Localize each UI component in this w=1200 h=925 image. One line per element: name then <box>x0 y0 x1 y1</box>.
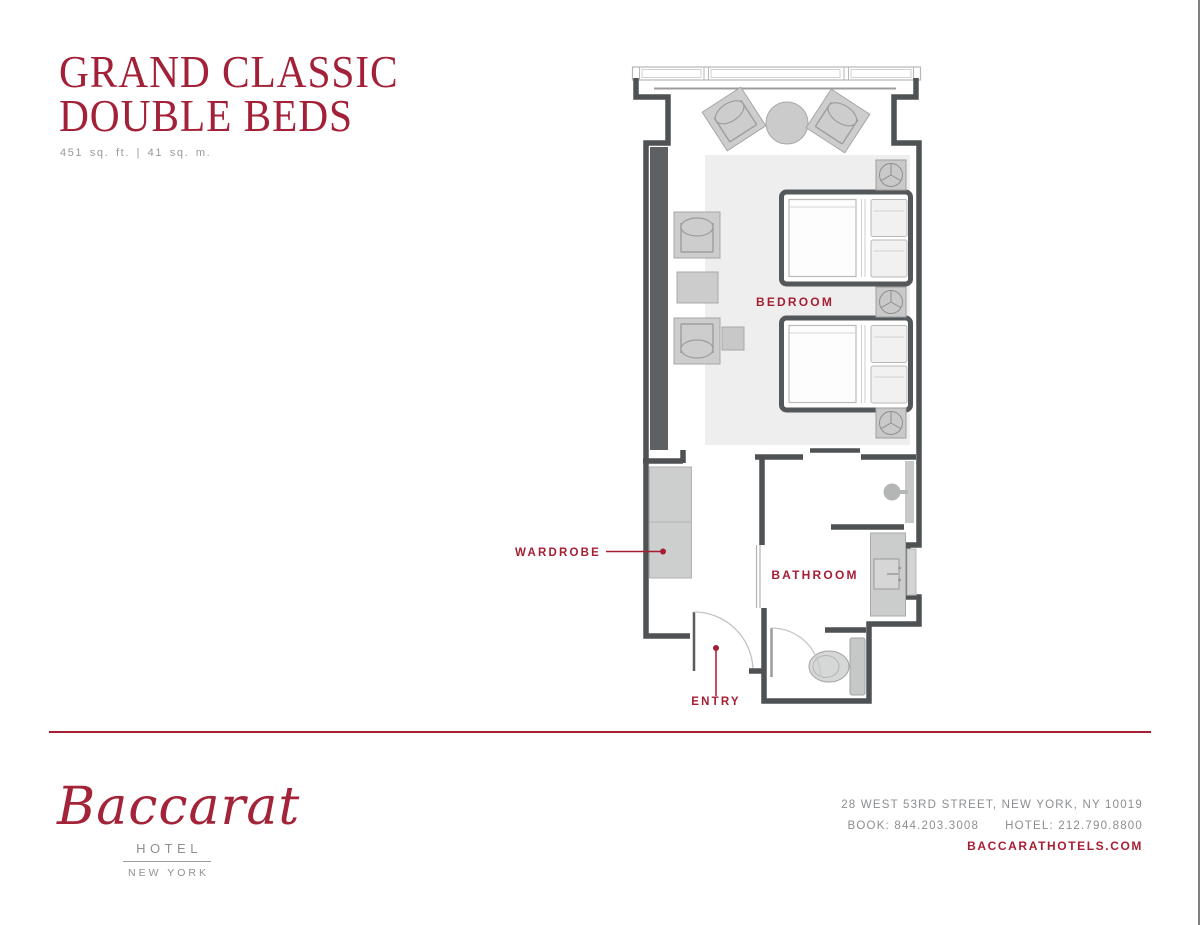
media-panel <box>650 147 668 450</box>
booking-phone: BOOK: 844.203.3008 <box>848 816 980 837</box>
wardrobe <box>650 467 692 578</box>
armchair-upper <box>674 212 720 258</box>
bed-1 <box>782 192 911 284</box>
nightstand-middle <box>876 287 906 317</box>
wall-entry-top <box>643 450 683 463</box>
wardrobe-label: WARDROBE <box>515 547 601 559</box>
hotel-phone: HOTEL: 212.790.8800 <box>1005 816 1143 837</box>
brand-hotel-text: HOTEL <box>57 841 277 856</box>
armchair-lower <box>674 318 720 364</box>
brand-city-text: NEW YORK <box>57 867 277 879</box>
round-table <box>766 102 808 144</box>
window-wall <box>633 67 921 80</box>
window-lounge-chair-left <box>702 87 766 151</box>
bathroom-label: BATHROOM <box>771 568 858 582</box>
entry-callout: ENTRY <box>691 645 741 708</box>
nightstand-bottom <box>876 408 906 438</box>
hotel-phones: BOOK: 844.203.3008HOTEL: 212.790.8800 <box>841 816 1143 837</box>
brand-wordmark: Baccarat <box>57 775 277 839</box>
brand-divider-line <box>123 861 211 862</box>
hotel-address: 28 WEST 53RD STREET, NEW YORK, NY 10019 <box>841 795 1143 816</box>
toilet <box>809 638 865 695</box>
entry-label: ENTRY <box>691 696 741 708</box>
bedroom-label: BEDROOM <box>756 295 834 309</box>
door-jamb-lines <box>757 545 761 608</box>
window-lounge-chair-right <box>806 89 870 153</box>
stool <box>722 327 744 350</box>
contact-block: 28 WEST 53RD STREET, NEW YORK, NY 10019 … <box>841 795 1143 857</box>
entry-door <box>694 612 763 671</box>
entry-leader-dot <box>713 645 719 651</box>
red-divider-line <box>49 731 1151 733</box>
hotel-website: BACCARATHOTELS.COM <box>841 836 1143 857</box>
nightstand-top <box>876 160 906 190</box>
shower-head <box>884 484 909 501</box>
side-table <box>677 272 718 303</box>
bed-2 <box>782 318 911 410</box>
wardrobe-leader-dot <box>660 549 666 555</box>
brand-logo: Baccarat HOTEL NEW YORK <box>57 775 277 879</box>
